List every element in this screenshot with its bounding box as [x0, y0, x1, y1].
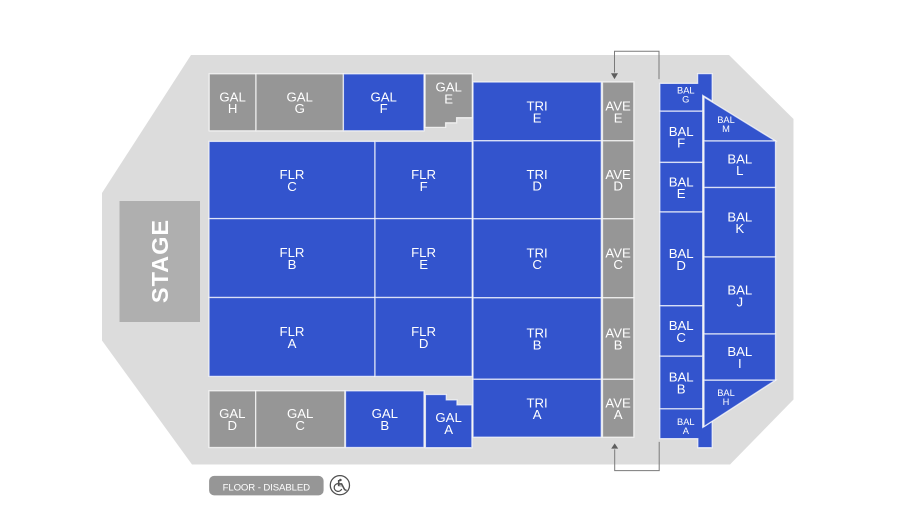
svg-text:A: A: [444, 422, 453, 437]
svg-text:C: C: [676, 330, 686, 345]
svg-text:C: C: [295, 418, 305, 433]
svg-text:L: L: [736, 163, 743, 178]
svg-text:E: E: [533, 110, 542, 125]
svg-text:E: E: [444, 91, 453, 106]
svg-text:F: F: [420, 179, 428, 194]
svg-text:D: D: [613, 179, 623, 194]
svg-text:D: D: [676, 258, 686, 273]
svg-text:M: M: [722, 124, 730, 134]
svg-text:B: B: [677, 381, 686, 396]
svg-text:H: H: [723, 397, 730, 407]
svg-text:C: C: [532, 257, 542, 272]
svg-text:D: D: [228, 418, 238, 433]
svg-text:D: D: [532, 179, 542, 194]
svg-text:E: E: [419, 257, 428, 272]
svg-text:G: G: [295, 101, 305, 116]
svg-text:A: A: [614, 407, 623, 422]
svg-text:B: B: [614, 337, 623, 352]
svg-text:STAGE: STAGE: [147, 219, 173, 303]
svg-text:A: A: [288, 336, 297, 351]
svg-text:G: G: [682, 95, 689, 105]
svg-text:F: F: [677, 136, 685, 151]
svg-text:J: J: [737, 294, 744, 309]
svg-text:B: B: [533, 337, 542, 352]
svg-text:A: A: [683, 426, 690, 436]
svg-text:I: I: [738, 356, 742, 371]
svg-text:H: H: [228, 101, 238, 116]
svg-text:E: E: [677, 186, 686, 201]
svg-text:FLOOR - DISABLED: FLOOR - DISABLED: [223, 482, 311, 493]
svg-text:B: B: [380, 418, 389, 433]
svg-text:C: C: [287, 179, 297, 194]
svg-text:A: A: [533, 407, 542, 422]
svg-text:C: C: [613, 257, 623, 272]
svg-text:F: F: [380, 101, 388, 116]
svg-text:E: E: [614, 110, 623, 125]
svg-text:K: K: [735, 221, 744, 236]
svg-text:D: D: [419, 336, 429, 351]
svg-text:B: B: [288, 257, 297, 272]
